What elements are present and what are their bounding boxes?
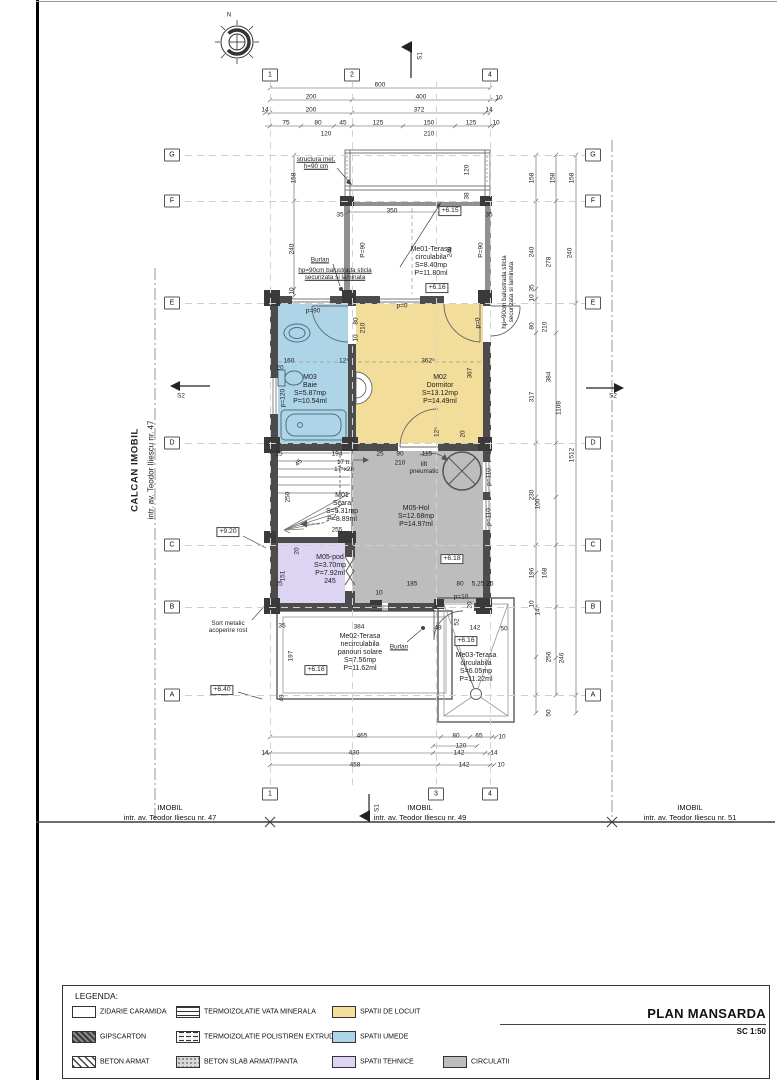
room-pod-fill [278, 543, 345, 603]
room-dormitor-fill [356, 304, 483, 443]
grid-bubble-row-B: B [164, 601, 180, 614]
room-baie-fill [278, 304, 348, 443]
grid-bubble-row-E: E [585, 297, 601, 310]
grid-bubble-row-F: F [585, 195, 601, 208]
legend-label-gips: GIPSCARTON [100, 1034, 146, 1041]
plan-scale: SC 1:50 [737, 1027, 766, 1036]
plan-drawing [0, 0, 777, 1080]
gridline-row-D [185, 443, 586, 444]
legend-swatch-circulatii [443, 1056, 467, 1068]
grid-bubble-row-A: A [585, 689, 601, 702]
site-label-2: intr. av. Teodor Iliescu nr. 51 [644, 813, 737, 822]
site-label-1: IMOBIL [407, 803, 432, 812]
terrace-me02 [277, 611, 452, 699]
gridline-row-G [185, 155, 586, 156]
room-fills [278, 304, 483, 603]
grid-bubble-row-C: C [585, 539, 601, 552]
gridline-col [436, 82, 437, 790]
legend-swatch-umede [332, 1031, 356, 1043]
legend-swatch-gips [72, 1031, 96, 1043]
legend-label-tehnice: SPATII TEHNICE [360, 1059, 414, 1066]
drain-icon [471, 689, 482, 700]
legend-swatch-beton [72, 1056, 96, 1068]
room-hol-fill [352, 451, 483, 603]
legend-swatch-slab [176, 1056, 200, 1068]
legend-label-slab: BETON SLAB ARMAT/PANTA [204, 1059, 298, 1066]
legend-label-polistiren: TERMOIZOLATIE POLISTIREN EXTRUDAT [204, 1034, 343, 1041]
gridline-col [490, 82, 491, 790]
gridline-col [270, 82, 271, 790]
legend-swatch-brick [72, 1006, 96, 1018]
grid-bubble-row-G: G [585, 149, 601, 162]
grid-bubble-col-4: 4 [482, 788, 498, 801]
grid-bubble-row-E: E [164, 297, 180, 310]
grid-bubble-row-D: D [164, 437, 180, 450]
legend-label-vata: TERMOIZOLATIE VATA MINERALA [204, 1009, 316, 1016]
legend-label-brick: ZIDARIE CARAMIDA [100, 1009, 167, 1016]
legend-swatch-locuit [332, 1006, 356, 1018]
grid-bubble-row-G: G [164, 149, 180, 162]
floor-plan-sheet: GGFFEEDDCCBBAA124134 6002004001014200372… [0, 0, 777, 1080]
grid-bubble-col-1: 1 [262, 69, 278, 82]
steel-structure [345, 150, 490, 202]
grid-bubble-row-F: F [164, 195, 180, 208]
site-label-0: intr. av. Teodor Iliescu nr. 47 [124, 813, 217, 822]
legend-label-locuit: SPATII DE LOCUIT [360, 1009, 420, 1016]
site-label-1: intr. av. Teodor Iliescu nr. 49 [374, 813, 467, 822]
site-label-2: IMOBIL [677, 803, 702, 812]
legend-label-umede: SPATII UMEDE [360, 1034, 408, 1041]
terrace-walls [344, 202, 491, 296]
gridline-row-C [185, 545, 586, 546]
legend-swatch-polistiren [176, 1031, 200, 1043]
legend-swatch-vata [176, 1006, 200, 1018]
grid-bubble-col-2: 2 [344, 69, 360, 82]
grid-bubble-row-D: D [585, 437, 601, 450]
site-label-0: IMOBIL [157, 803, 182, 812]
legend-label-circulatii: CIRCULATII [471, 1059, 509, 1066]
grid-bubble-row-A: A [164, 689, 180, 702]
gridline-col [352, 82, 353, 790]
gridline-row-E [185, 303, 586, 304]
compass-icon [215, 20, 259, 64]
grid-bubble-col-1: 1 [262, 788, 278, 801]
terrace-me03 [438, 598, 514, 722]
gridline-row-A [185, 695, 586, 696]
legend-label-beton: BETON ARMAT [100, 1059, 150, 1066]
legend-heading: LEGENDA: [75, 991, 118, 1001]
grid-bubble-col-3: 3 [428, 788, 444, 801]
grid-bubble-row-B: B [585, 601, 601, 614]
gridline-row-F [185, 201, 586, 202]
plan-title: PLAN MANSARDA [647, 1006, 766, 1021]
title-rule [500, 1024, 766, 1025]
grid-bubble-col-4: 4 [482, 69, 498, 82]
legend-swatch-tehnice [332, 1056, 356, 1068]
grid-bubble-row-C: C [164, 539, 180, 552]
legend-box [62, 985, 770, 1079]
gridline-row-B [185, 607, 586, 608]
